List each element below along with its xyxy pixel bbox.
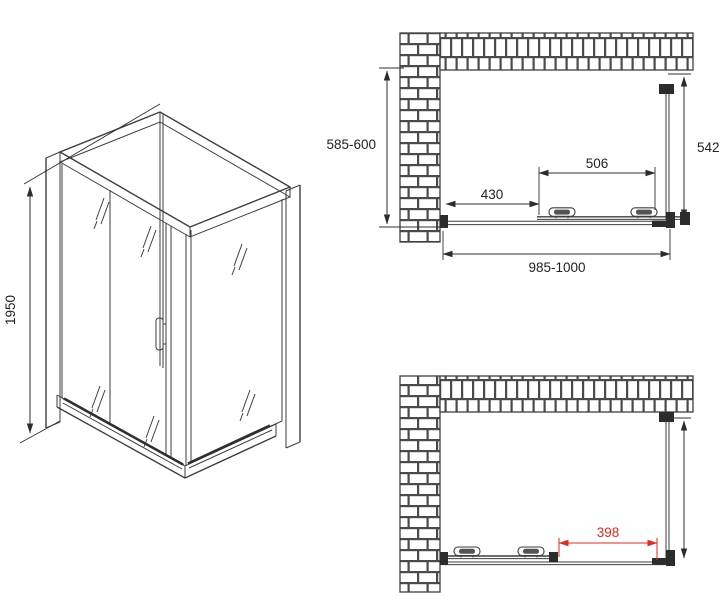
dimension-door-width: 506 <box>539 156 655 215</box>
side-panel-plan <box>659 412 674 559</box>
glass-reflections <box>90 198 255 447</box>
side-panel-plan <box>659 84 674 220</box>
dim-side-panel-label: 542 <box>697 140 720 155</box>
roller <box>631 208 657 219</box>
track-and-door-plan <box>440 208 690 228</box>
side-panel-face <box>188 199 282 464</box>
left-wall-hatch <box>400 33 440 242</box>
plan-view-open: 398 <box>400 376 693 592</box>
wall-bracket <box>440 215 448 228</box>
dimension-height: 1950 <box>3 104 160 443</box>
dimension-wall-offset: 430 <box>446 187 539 204</box>
dimension-side-panel: 542 <box>668 74 720 219</box>
top-frame <box>60 112 290 237</box>
dimension-total-width: 985-1000 <box>443 229 670 275</box>
dim-wall-offset-label: 430 <box>481 187 504 202</box>
roller <box>518 547 544 558</box>
top-wall-hatch <box>440 33 693 70</box>
dim-door-width-label: 506 <box>586 156 609 171</box>
dim-depth-label: 585-600 <box>326 137 376 152</box>
dimension-side-reference <box>669 418 691 558</box>
dim-height-label: 1950 <box>3 295 18 325</box>
track-and-door-plan <box>440 547 675 566</box>
dim-total-width-label: 985-1000 <box>528 260 585 275</box>
door-end-cap <box>549 552 558 562</box>
isometric-view: 1950 <box>3 104 300 478</box>
drawing-svg: 1950 585-600 <box>0 0 728 600</box>
right-wall-profile <box>286 185 300 448</box>
wall-bracket <box>440 552 448 565</box>
dimension-opening: 398 <box>559 525 657 560</box>
door-handle <box>156 318 166 350</box>
plan-view-closed: 585-600 542 506 430 985-1000 <box>326 33 719 275</box>
roller <box>454 547 480 558</box>
left-wall-profile <box>46 152 60 428</box>
left-wall-hatch <box>400 376 440 592</box>
technical-drawing-canvas: 1950 585-600 <box>0 0 728 600</box>
dim-opening-label: 398 <box>597 525 620 540</box>
top-wall-hatch <box>440 376 693 412</box>
roller <box>549 208 575 219</box>
